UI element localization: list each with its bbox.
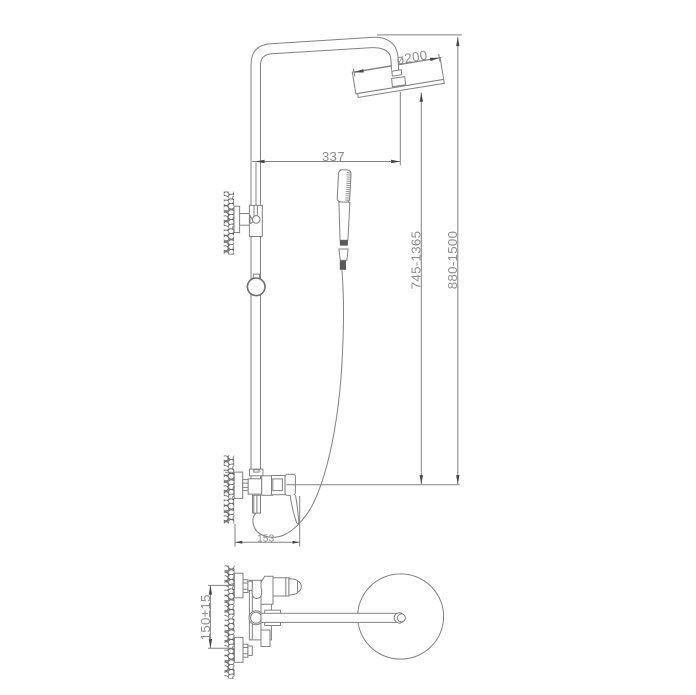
svg-text:745-1365: 745-1365 [409,231,424,290]
svg-text:337: 337 [322,149,345,164]
svg-text:150±15: 150±15 [198,594,213,640]
svg-text:880-1500: 880-1500 [445,231,460,290]
svg-text:153: 153 [257,534,275,545]
